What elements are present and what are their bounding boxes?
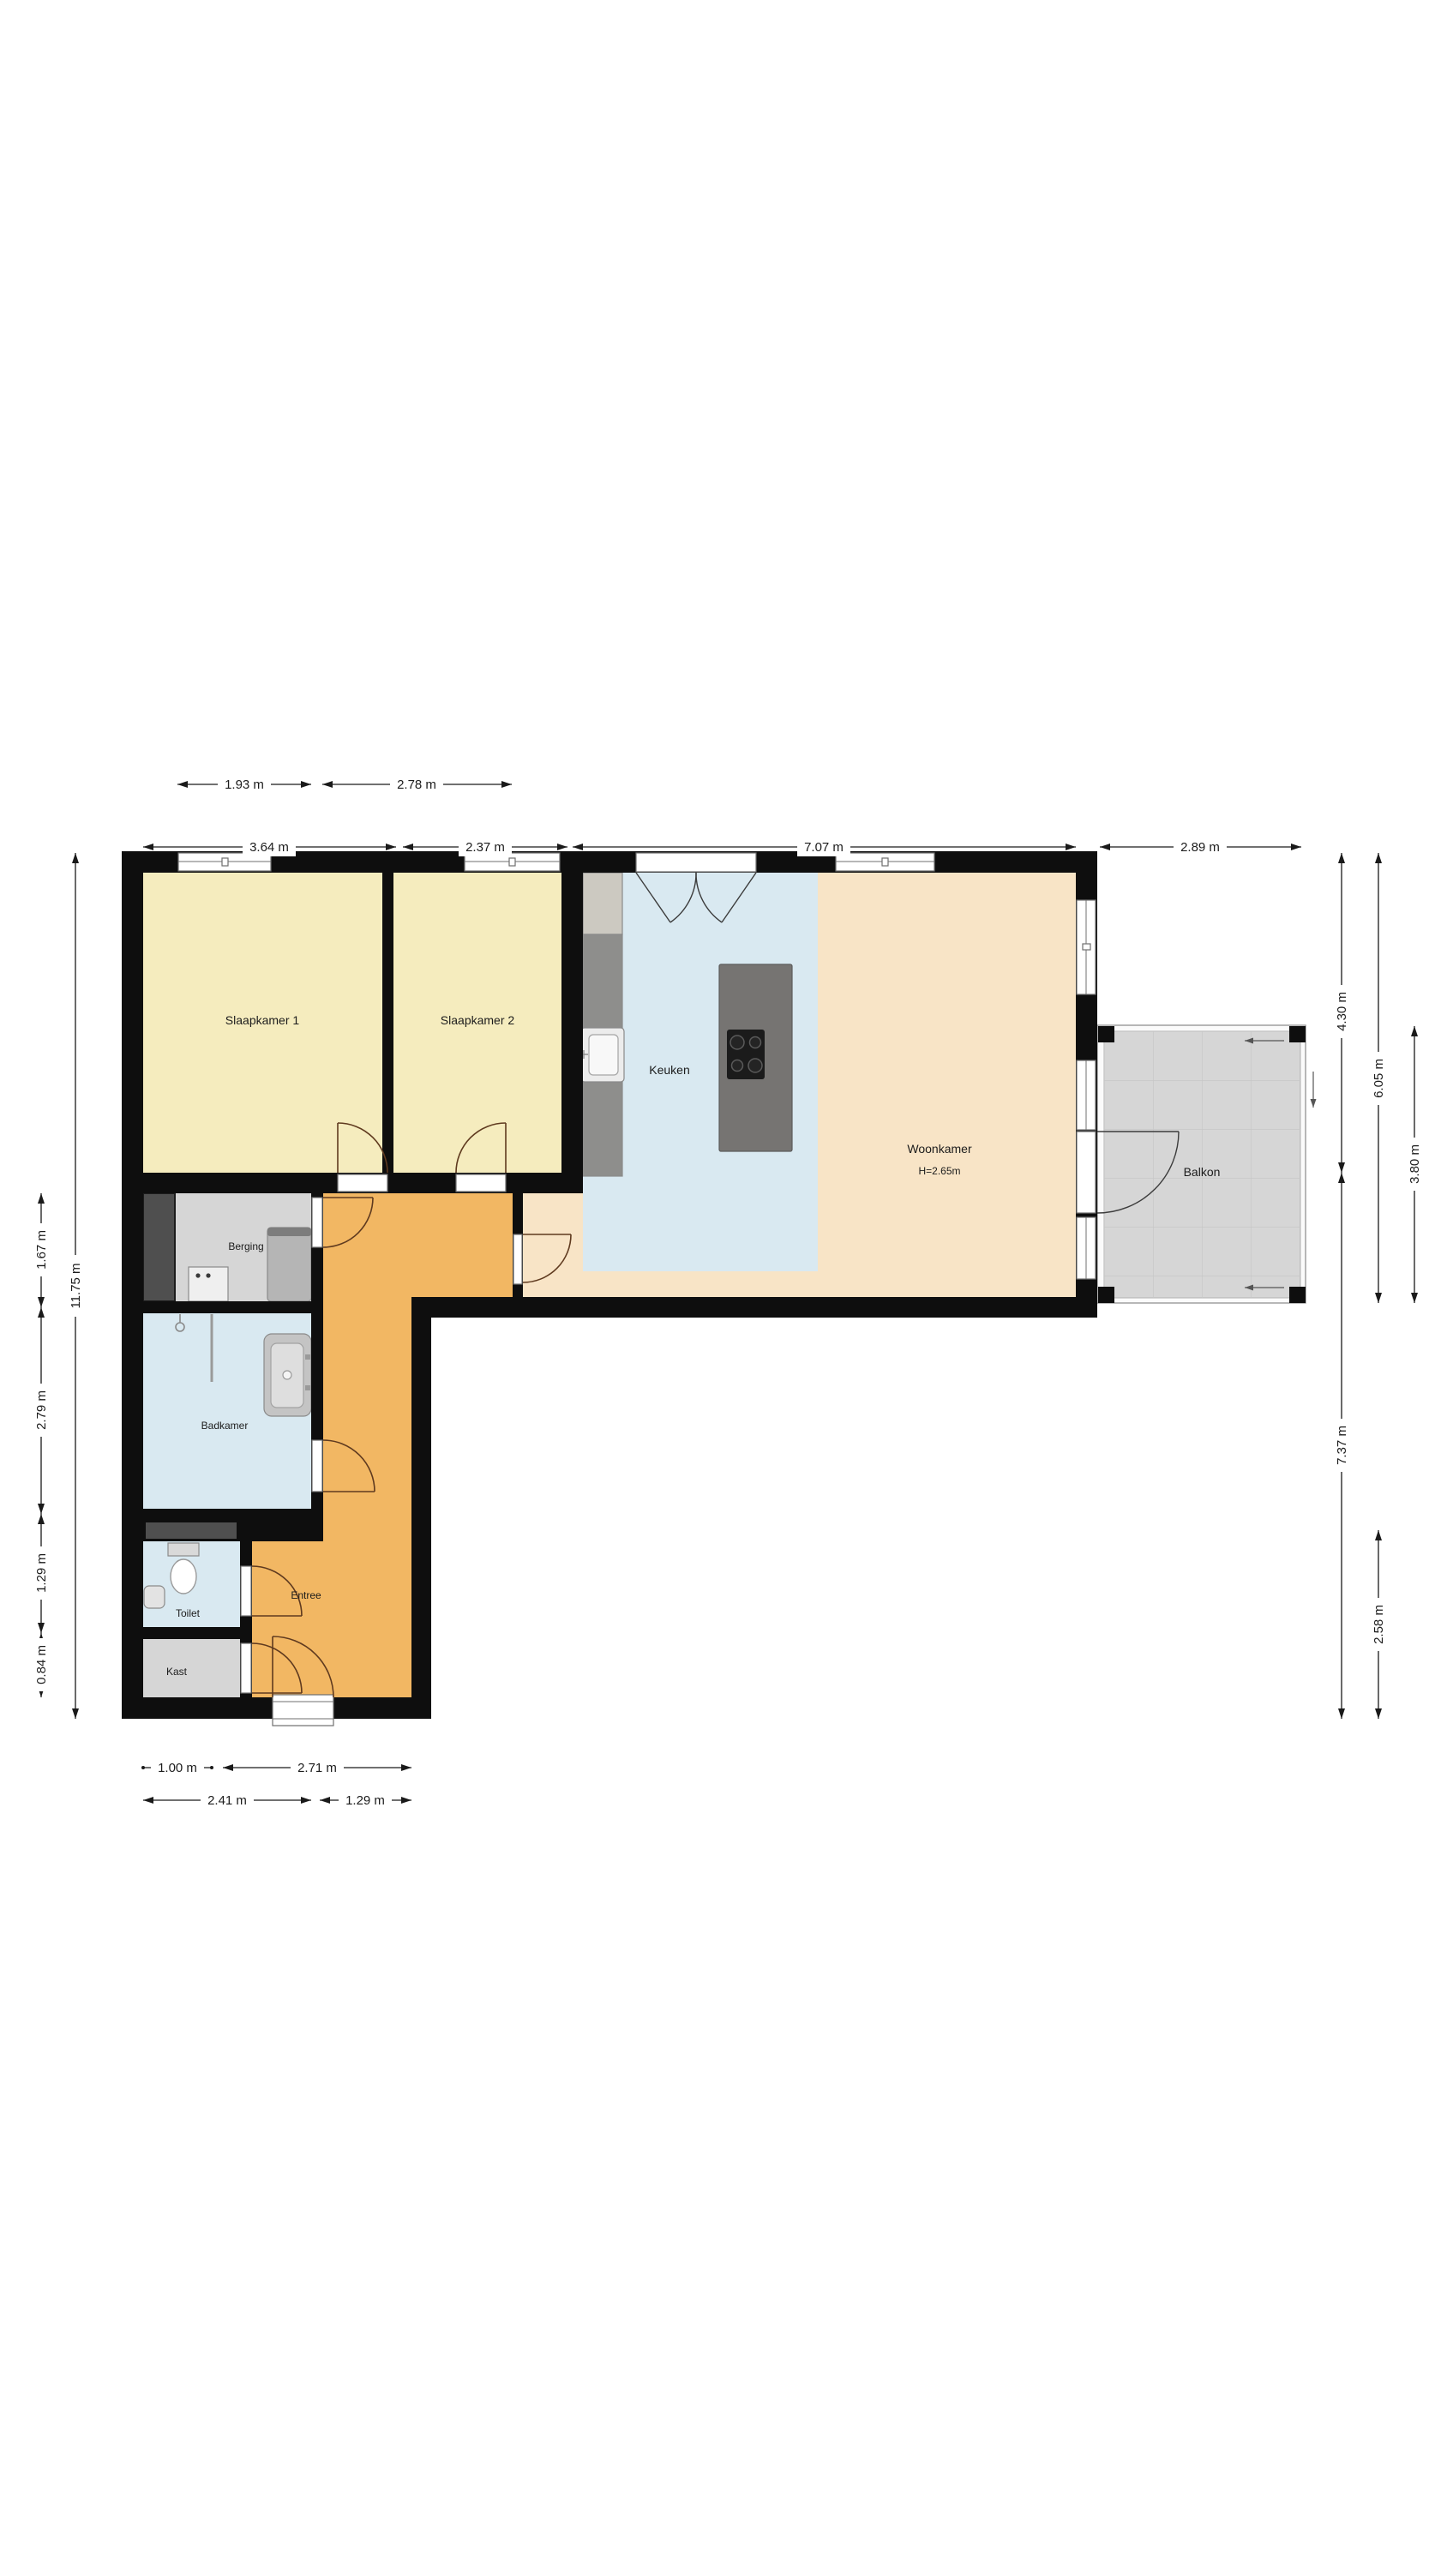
dimension-label: 2.89 m: [1180, 840, 1220, 855]
bathroom-sink-icon: [264, 1334, 311, 1416]
duct-strip: [146, 1522, 237, 1539]
dimension-label: 2.41 m: [207, 1793, 247, 1808]
dimension-label: 3.80 m: [1408, 1144, 1422, 1184]
dimension-label: 1.67 m: [34, 1230, 49, 1270]
dimension-label: 2.37 m: [465, 840, 505, 855]
room-label-slaapkamer-2: Slaapkamer 2: [441, 1013, 515, 1027]
window: [1077, 900, 1096, 994]
room-label-woonkamer: Woonkamer: [907, 1142, 972, 1156]
window: [836, 853, 934, 871]
dimension-label: 2.71 m: [297, 1761, 337, 1775]
kitchen-counter: [579, 873, 624, 1176]
dimension-label: 0.84 m: [34, 1645, 49, 1684]
dimension-label: 6.05 m: [1372, 1059, 1386, 1098]
dimension-label: 2.58 m: [1372, 1605, 1386, 1644]
washing-machine-icon: [189, 1267, 228, 1301]
window: [1077, 1217, 1096, 1279]
room-label-keuken: Keuken: [649, 1063, 689, 1077]
dimension-label: 4.30 m: [1335, 992, 1349, 1031]
dimension-label: 1.29 m: [34, 1553, 49, 1593]
room-label-badkamer: Badkamer: [201, 1420, 249, 1432]
dimension-label: 3.64 m: [249, 840, 289, 855]
kitchen-island: [719, 964, 792, 1151]
dimension-dot: [210, 1766, 213, 1769]
room-label-toilet: Toilet: [176, 1607, 201, 1619]
toilet-handbasin-icon: [144, 1586, 165, 1608]
room-label-balkon: Balkon: [1184, 1165, 1221, 1179]
floor-plan-svg: 1.93 m 2.78 m 3.64 m 2.37 m 7.07 m 2.89 …: [0, 0, 1447, 2572]
dimension-label: 7.07 m: [804, 840, 844, 855]
boiler-cabinet-icon: [267, 1228, 311, 1301]
floor-plan-page: 1.93 m 2.78 m 3.64 m 2.37 m 7.07 m 2.89 …: [0, 0, 1447, 2572]
room-label-berging: Berging: [228, 1240, 263, 1252]
dimension-label: 1.93 m: [225, 778, 264, 792]
window: [1077, 1060, 1096, 1130]
room-label-kast: Kast: [166, 1666, 188, 1678]
dimension-label: 2.78 m: [397, 778, 436, 792]
room-label-slaapkamer-1: Slaapkamer 1: [225, 1013, 300, 1027]
dimension-label: 7.37 m: [1335, 1426, 1349, 1465]
cooktop-icon: [727, 1030, 765, 1079]
balcony: [1097, 1025, 1313, 1303]
dimension-label: 11.75 m: [69, 1263, 83, 1308]
dimension-dot: [141, 1766, 145, 1769]
duct-shaft: [143, 1193, 175, 1301]
room-kast: [143, 1639, 240, 1697]
kitchen-sink-icon: [579, 1028, 624, 1082]
dimension-label: 1.00 m: [158, 1761, 197, 1775]
toilet-icon: [168, 1543, 199, 1594]
dimension-label: 1.29 m: [345, 1793, 385, 1808]
dimension-label: 2.79 m: [34, 1390, 49, 1430]
room-label-entree: Entree: [291, 1589, 321, 1601]
room-label-woonkamer-height: H=2.65m: [918, 1165, 960, 1177]
